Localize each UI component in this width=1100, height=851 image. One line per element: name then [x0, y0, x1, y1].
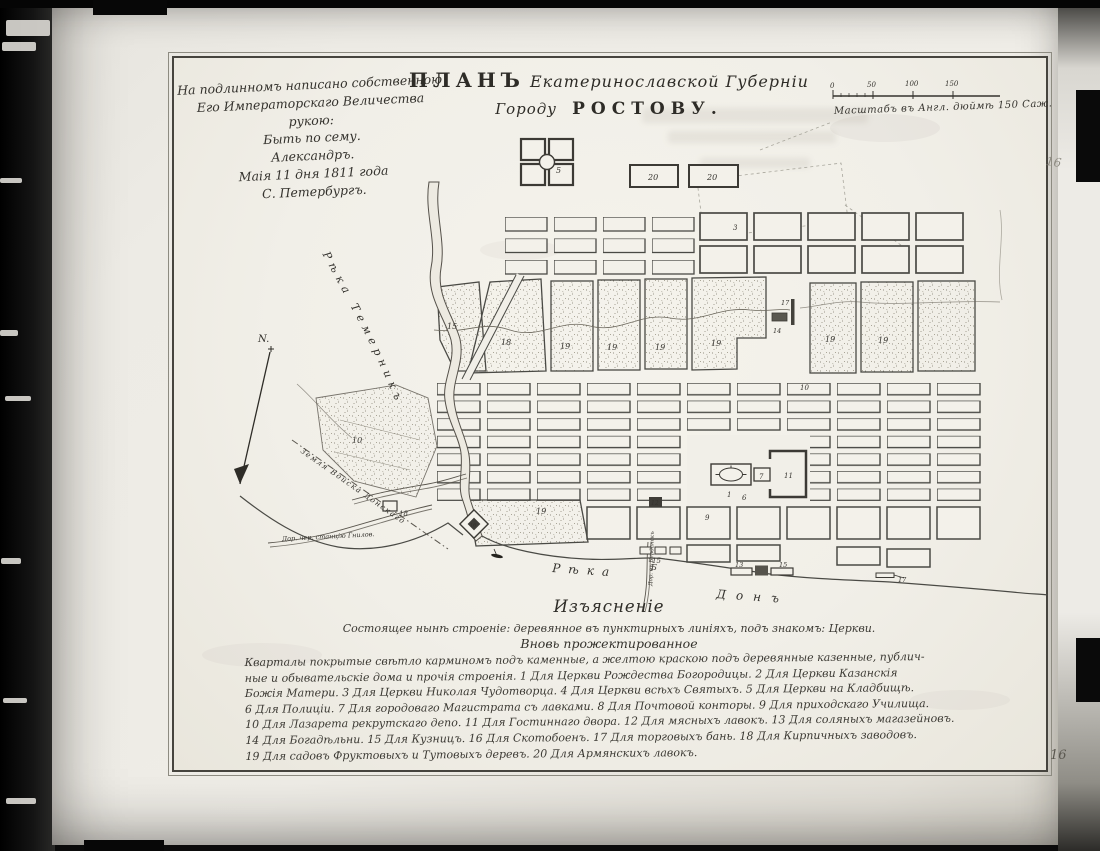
title-province: Екатеринославской Губерніи	[530, 72, 809, 91]
ink-bleed	[700, 158, 810, 168]
legend-body: Кварталы покрытые свѣтло карминомъ подъ …	[245, 649, 936, 764]
book-fore-edge	[0, 0, 55, 851]
page-edge-streak	[6, 20, 50, 36]
title-word-rostov: РОСТОВУ.	[572, 99, 723, 119]
map-title: ПЛАНЪ Екатеринославской Губерніи Городу …	[168, 68, 1050, 119]
page-edge-streak	[2, 42, 36, 51]
page-number-bottom: 16	[1050, 748, 1067, 763]
title-word-city: Городу	[495, 100, 557, 118]
scan-mark-bottom	[84, 840, 164, 851]
scan-mark-right-lower	[1076, 638, 1100, 702]
page-edge-streak	[3, 698, 27, 703]
scanned-book-page: { "colors": {"paper": "#f2f0e9", "ink": …	[0, 0, 1100, 851]
page-number-top: 16	[1045, 154, 1062, 170]
page-edge-streak	[0, 330, 18, 336]
legend-heading: Изъясненіе	[168, 597, 1050, 616]
ink-bleed	[668, 131, 836, 143]
scan-mark-right-upper	[1076, 90, 1100, 182]
page-edge-streak	[5, 396, 31, 401]
title-word-plan: ПЛАНЪ	[409, 68, 525, 92]
scan-mark-top	[93, 0, 167, 15]
legend-existing-note: Состоящее нынѣ строеніе: деревянное въ п…	[168, 622, 1050, 635]
page-edge-streak	[1, 558, 21, 564]
page-edge-streak	[6, 798, 36, 804]
page-edge-streak	[0, 178, 22, 183]
